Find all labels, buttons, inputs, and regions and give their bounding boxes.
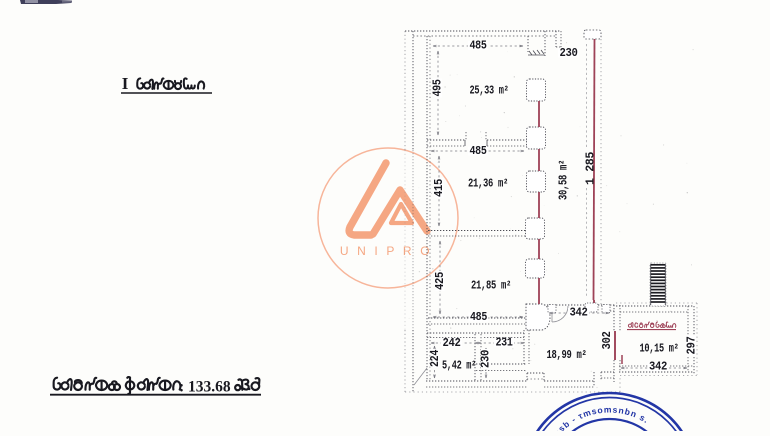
- svg-text:: 133.68: : 133.68: [179, 378, 231, 395]
- svg-text:UNIPRO: UNIPRO: [340, 244, 438, 258]
- svg-text:10,15 m²: 10,15 m²: [640, 343, 679, 356]
- svg-text:231: 231: [496, 336, 513, 350]
- svg-text:5,42 m²: 5,42 m²: [442, 360, 476, 373]
- svg-text:242: 242: [443, 336, 461, 350]
- svg-text:I: I: [122, 74, 129, 93]
- svg-text:342: 342: [570, 306, 588, 320]
- svg-text:21,36 m²: 21,36 m²: [468, 178, 508, 191]
- svg-text:495: 495: [431, 79, 445, 96]
- svg-text:25,33 m²: 25,33 m²: [470, 85, 509, 98]
- svg-text:1 285: 1 285: [585, 152, 598, 185]
- svg-text:485: 485: [470, 310, 487, 324]
- svg-text:425: 425: [433, 272, 447, 290]
- svg-text:485: 485: [470, 144, 487, 158]
- svg-text:230: 230: [560, 46, 578, 60]
- svg-text:342: 342: [649, 360, 667, 374]
- svg-text:21,85 m²: 21,85 m²: [471, 280, 511, 293]
- svg-text:30,58 m²: 30,58 m²: [558, 160, 571, 200]
- svg-text:297: 297: [685, 336, 699, 354]
- svg-text:230: 230: [479, 350, 493, 368]
- svg-text:224: 224: [428, 350, 442, 367]
- svg-text:485: 485: [470, 39, 487, 53]
- svg-text:18,99 m²: 18,99 m²: [547, 349, 587, 362]
- svg-text:302: 302: [600, 331, 614, 349]
- svg-text:415: 415: [432, 179, 446, 197]
